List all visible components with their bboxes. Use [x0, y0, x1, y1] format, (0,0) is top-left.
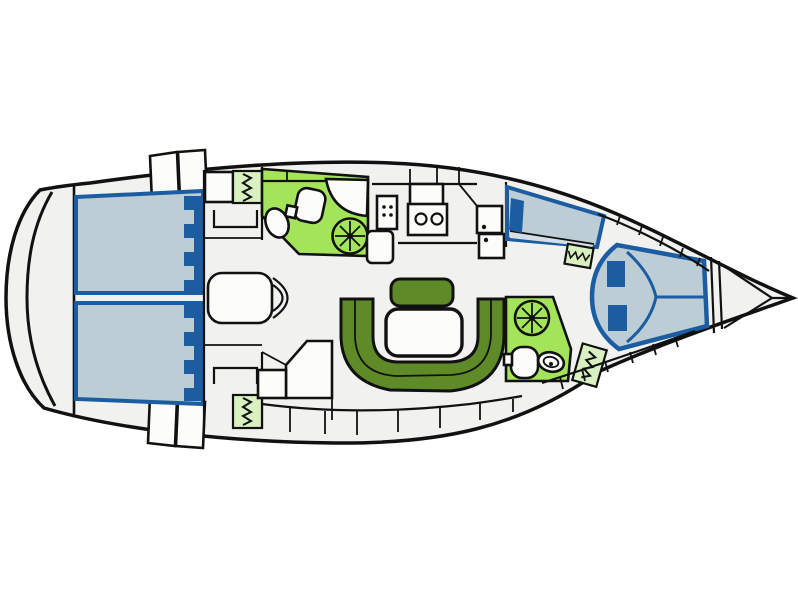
shower-drain-center — [347, 233, 353, 239]
starboard-berth-mattress — [76, 303, 203, 404]
galley-oven — [367, 231, 393, 263]
latch-dot — [482, 225, 486, 229]
toilet — [293, 186, 327, 224]
drain-dot — [549, 362, 553, 366]
burner-dot — [382, 205, 386, 209]
forward-head-shower — [515, 301, 549, 335]
blanket-notch — [184, 210, 194, 224]
blanket-notch — [184, 318, 194, 332]
cabinet — [205, 172, 233, 202]
vberth-pillow — [607, 261, 625, 287]
bench-seat — [391, 279, 453, 306]
galley-locker — [477, 206, 502, 233]
salon-table — [386, 309, 462, 356]
port-berth-mattress — [76, 191, 203, 293]
burner-dot — [382, 213, 386, 217]
latch-dot — [484, 238, 488, 242]
galley-stove — [377, 196, 397, 229]
blanket-notch — [184, 266, 194, 280]
forward-head-toilet — [511, 347, 538, 378]
shower-drain-center — [529, 315, 535, 321]
nav-seat — [208, 273, 272, 323]
aft-cabin-port-berth — [76, 191, 203, 293]
blanket-notch — [184, 346, 194, 360]
vberth-pillow — [608, 305, 627, 331]
galley-top-locker — [410, 184, 443, 205]
yacht-layout-plan — [0, 0, 798, 598]
floor-plan-canvas — [0, 0, 798, 598]
blanket-notch — [184, 374, 194, 388]
galley-locker — [479, 234, 504, 258]
burner-dot — [389, 205, 393, 209]
aft-cabin-starboard-berth — [76, 303, 203, 404]
stern-deck-locker — [176, 400, 205, 448]
flush-box — [504, 354, 512, 365]
salon-cabinet — [258, 370, 286, 398]
aft-head-shower — [333, 219, 368, 254]
blanket-notch — [184, 238, 194, 252]
single-berth-pillow — [509, 198, 524, 233]
burner-dot — [389, 213, 393, 217]
